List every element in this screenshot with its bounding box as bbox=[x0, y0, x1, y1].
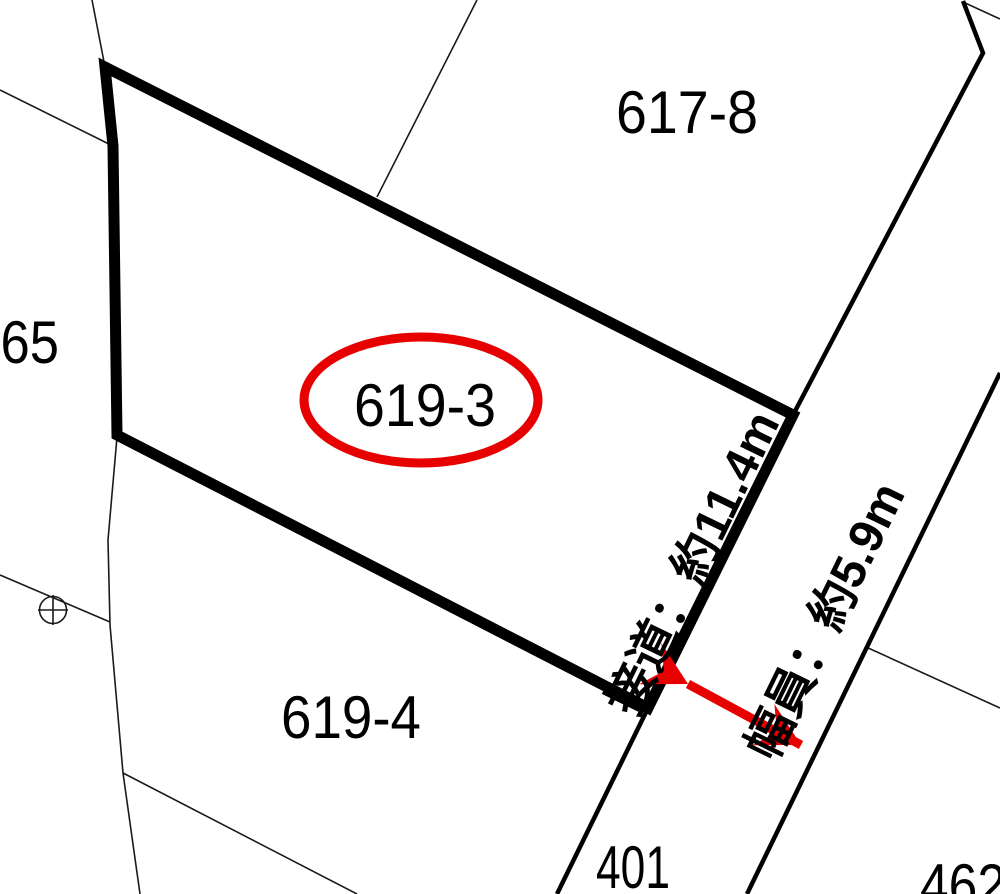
parcel-label-617-8: 617-8 bbox=[616, 79, 758, 146]
parcel-label-619-4: 619-4 bbox=[281, 684, 421, 751]
boundary-right-of-road bbox=[866, 647, 1000, 708]
road-left-edge-upper bbox=[793, 1, 983, 415]
road-width-annotation: 幅員：約5.9m bbox=[736, 475, 915, 768]
boundary-topleft-upper bbox=[92, 0, 105, 67]
frontage-annotation: 接道：約11.4m bbox=[598, 403, 790, 723]
boundary-marker-diagonal bbox=[0, 575, 110, 622]
cadastral-map: 617-8 619-3 619-4 401 462 -65 接道：約11.4m … bbox=[0, 0, 1000, 894]
parcel-label-65: -65 bbox=[0, 309, 59, 376]
boundary-617-8-left bbox=[377, 0, 477, 197]
map-canvas: 617-8 619-3 619-4 401 462 -65 接道：約11.4m … bbox=[0, 0, 1000, 894]
road-right-edge bbox=[747, 373, 1000, 894]
survey-marker-icon bbox=[38, 595, 68, 625]
boundary-topleft-diagonal bbox=[0, 90, 113, 146]
survey-marker-cross bbox=[38, 595, 68, 625]
parcel-label-619-3: 619-3 bbox=[354, 372, 496, 439]
boundary-left-vertical bbox=[108, 437, 140, 894]
parcel-label-401: 401 bbox=[596, 834, 670, 894]
boundary-619-4-bottom bbox=[123, 773, 357, 894]
parcel-label-462: 462 bbox=[920, 852, 1000, 894]
